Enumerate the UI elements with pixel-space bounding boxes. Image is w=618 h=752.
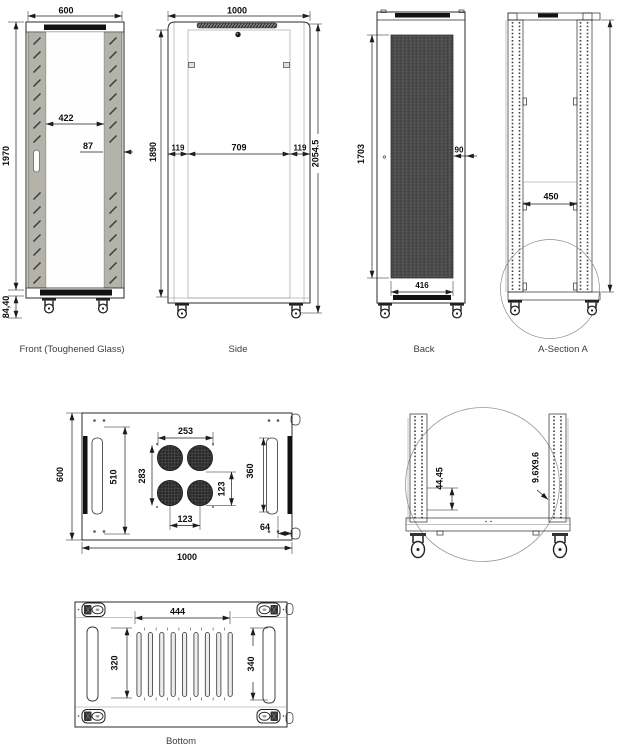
side-door-lock	[235, 32, 240, 37]
top-right-cable-slot	[267, 438, 278, 514]
top-width-dim: 1000	[177, 552, 197, 562]
side-top-width-dim: 1000	[227, 6, 247, 16]
top-slot-length-dim: 510	[109, 469, 119, 484]
back-top-vent-strip	[395, 13, 450, 18]
back-bottom-vent-strip	[393, 295, 451, 300]
section-view: 450 A-Section A	[501, 13, 615, 355]
top-right-edge-strip	[288, 436, 293, 514]
side-total-height-dim: 2054.5	[311, 140, 321, 168]
section-detail-callout-circle	[501, 240, 600, 339]
side-view: 1000 119 709 119 1890 2054.5 Side	[148, 6, 322, 356]
rack-cabinet-drawing-sheet: 600 422 87 1970 84,40 Front (Toughened G…	[0, 0, 618, 752]
top-right-span-dim: 360	[245, 463, 255, 478]
detail-left-caster	[410, 533, 426, 558]
bottom-vent-slots	[137, 633, 232, 697]
back-mesh-height-dim: 1703	[356, 144, 366, 164]
side-door-width-dim: 709	[231, 143, 246, 153]
detail-hole-size-dim: 9.6X9.6	[531, 452, 541, 483]
bottom-right-cable-slot	[263, 627, 275, 703]
top-left-edge-strip	[83, 436, 88, 514]
side-height-dim: 1890	[148, 142, 158, 162]
side-casters	[175, 303, 303, 318]
detail-extension-lines	[427, 488, 458, 510]
front-casters	[42, 298, 110, 313]
top-fan-pitch-horizontal-dim: 123	[177, 514, 192, 524]
section-right-rail	[577, 20, 592, 292]
detail-hole-pitch-dim: 44.45	[435, 467, 445, 490]
front-top-vent-strip	[44, 25, 106, 31]
back-view: 1703 90 416 Back	[356, 10, 477, 355]
section-extension-lines	[601, 20, 614, 292]
back-caption: Back	[413, 344, 434, 355]
side-top-vent-grille	[197, 23, 277, 28]
section-left-rail	[508, 20, 523, 292]
section-top-vent	[538, 14, 558, 18]
bottom-left-cable-slot	[87, 627, 98, 701]
detail-left-rail	[410, 414, 427, 522]
front-height-dim: 1970	[1, 146, 11, 166]
back-side-offset-dim: 90	[455, 146, 464, 155]
bottom-vent-width-dim: 444	[170, 607, 185, 617]
front-glass-width-dim: 422	[58, 113, 73, 123]
front-right-frame-panel	[104, 32, 122, 288]
top-left-cable-slot	[92, 438, 103, 514]
front-glass-door	[46, 32, 104, 288]
section-bottom-member	[508, 292, 600, 300]
top-fan-pitch-vertical-dim: 123	[217, 481, 227, 496]
section-casters	[508, 300, 599, 315]
drawing-svg: 600 422 87 1970 84,40 Front (Toughened G…	[0, 0, 618, 752]
side-caption: Side	[228, 344, 247, 355]
side-left-inset-dim: 119	[172, 144, 185, 153]
front-frame-width-dim: 87	[83, 141, 93, 151]
top-depth-dim: 600	[55, 467, 65, 482]
bottom-slot-right-length-dim: 340	[246, 656, 256, 671]
bottom-view: 444 320 340 Bottom	[75, 602, 293, 747]
front-door-handle	[34, 150, 40, 172]
section-inner-width-dim: 450	[543, 192, 558, 202]
bottom-slot-left-length-dim: 320	[110, 655, 120, 670]
top-fan-group-width-dim: 253	[178, 426, 193, 436]
bottom-caption: Bottom	[166, 736, 196, 747]
back-casters	[378, 303, 464, 318]
front-top-width-dim: 600	[58, 6, 73, 16]
top-fan-group-height-dim: 283	[137, 468, 147, 483]
top-edge-offset-dim: 64	[260, 522, 270, 532]
detail-view: 44.45 9.6X9.6	[406, 408, 571, 562]
front-caption: Front (Toughened Glass)	[19, 344, 124, 355]
detail-callout-circle	[406, 408, 560, 562]
front-base-height-dim: 84,40	[1, 296, 11, 319]
front-bottom-vent-strip	[40, 290, 112, 296]
detail-right-caster	[552, 533, 568, 558]
back-mesh-width-dim: 416	[415, 281, 429, 290]
side-right-inset-dim: 119	[294, 144, 307, 153]
section-rail-mounting-holes	[513, 22, 588, 290]
front-view: 600 422 87 1970 84,40 Front (Toughened G…	[1, 6, 133, 356]
top-view: 253 510 283 123 123 360 64 600 1000	[55, 413, 300, 562]
section-caption: A-Section A	[538, 344, 588, 355]
